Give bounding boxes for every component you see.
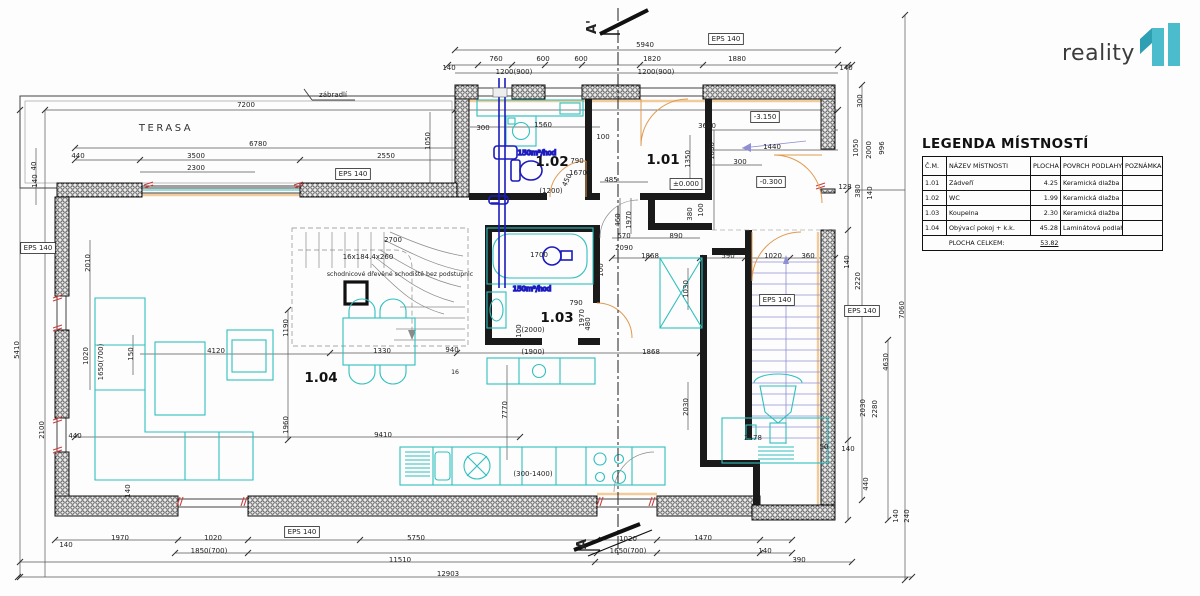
floor-plan-drawing: A'A5940760600600182018801401401200(900)1… <box>0 0 1200 596</box>
total-value: 53.82 <box>1031 236 1061 251</box>
dim-label: 300 <box>856 94 864 107</box>
cell-cm: 1.02 <box>923 191 947 206</box>
niche-door <box>614 452 654 492</box>
dim-label: 790 <box>570 157 583 165</box>
dim-label: 1030 <box>682 280 690 298</box>
dim-label: 2300 <box>187 164 205 172</box>
dim-label: 1868 <box>641 252 659 260</box>
eps-label: EPS 140 <box>288 528 317 536</box>
wardrobe <box>660 258 702 328</box>
dim-label: 1190 <box>282 319 290 337</box>
dim-label: 150 <box>127 347 135 360</box>
logo-flag <box>1140 28 1152 54</box>
dim-label: 2010 <box>84 254 92 272</box>
dim-label: 140 <box>841 445 854 453</box>
eps-label: EPS 140 <box>24 244 53 252</box>
dim-label: 790 <box>569 299 582 307</box>
kitchen-sink <box>435 452 450 480</box>
cell-povrch: Keramická dlažba <box>1061 206 1123 221</box>
eps-label: EPS 140 <box>848 307 877 315</box>
dim-label: 2100 <box>38 421 46 439</box>
dim-label: 1050 <box>424 132 432 150</box>
dim-label: 7770 <box>501 401 509 419</box>
cell-povrch: Keramická dlažba <box>1061 176 1123 191</box>
drainboard <box>405 452 430 476</box>
cooktop <box>594 453 626 484</box>
dim-label: 600 <box>536 55 549 63</box>
level-label: -0.300 <box>760 178 783 186</box>
dim-label: 485 <box>604 176 617 184</box>
legend-total-row: PLOCHA CELKEM: 53.82 <box>923 236 1163 251</box>
dim-label: 1868 <box>642 348 660 356</box>
dim-label: 480 <box>584 317 592 330</box>
dim-label: 2090 <box>615 244 633 252</box>
vent-label-wc: 150m³/hod <box>518 149 557 157</box>
cell-cm: 1.04 <box>923 221 947 236</box>
dim-label: 1560 <box>534 121 552 129</box>
window-sill-marks <box>53 182 825 506</box>
dim-label: 16x184.4x260 <box>343 253 394 261</box>
legend-row: 1.02 WC 1.99 Keramická dlažba <box>923 191 1163 206</box>
dim-label: 460 <box>614 213 622 226</box>
dim-label: 1960 <box>282 416 290 434</box>
dim-label: 140 <box>892 509 900 522</box>
dim-label: 11510 <box>389 556 411 564</box>
cell-plocha: 2.30 <box>1031 206 1061 221</box>
dim-label: 1470 <box>694 534 712 542</box>
dim-label: 140 <box>758 547 771 555</box>
section-marker-label-bottom: A <box>575 539 590 549</box>
dim-label: 40 <box>30 162 38 171</box>
dim-label: 100 <box>596 133 609 141</box>
legend-header-row: Č.M. NÁZEV MÍSTNOSTI PLOCHA [m2] POVRCH … <box>923 157 1163 176</box>
dim-label: 100 <box>597 263 605 276</box>
dim-label: 1970 <box>625 211 633 229</box>
legend-title: LEGENDA MÍSTNOSTÍ <box>922 136 1162 152</box>
cell-nazev: Koupelna <box>947 206 1031 221</box>
dim-label: 380 <box>854 184 862 197</box>
col-povrch: POVRCH PODLAHY <box>1061 157 1123 176</box>
dim-label: 7200 <box>237 101 255 109</box>
terrace-label: TERASA <box>138 123 193 134</box>
eps-label: EPS 140 <box>712 35 741 43</box>
dim-label: 140 <box>442 64 455 72</box>
stove-armchair <box>722 374 828 463</box>
stair-note: schodnicové dřevěné schodiště bez podstu… <box>327 270 474 278</box>
cell-plocha: 1.99 <box>1031 191 1061 206</box>
floor-plan-page: { "logo": { "text": "reality", "brand_co… <box>0 0 1200 596</box>
dim-label: 4630 <box>882 353 890 371</box>
dim-label: 3620 <box>698 122 716 130</box>
dim-label: 1820 <box>643 55 661 63</box>
dim-label: 100 <box>697 203 705 216</box>
dim-label: 300 <box>733 158 746 166</box>
legend-table: Č.M. NÁZEV MÍSTNOSTI PLOCHA [m2] POVRCH … <box>922 156 1163 251</box>
dim-label: 360 <box>801 252 814 260</box>
dim-label: 1020 <box>82 347 90 365</box>
logo-bar-1 <box>1152 28 1164 66</box>
dim-label: 5750 <box>407 534 425 542</box>
entry-direction-arrow <box>742 143 751 152</box>
dim-label: 600 <box>574 55 587 63</box>
dim-label: 1350 <box>684 150 692 168</box>
tv-armchair <box>227 330 273 380</box>
cell-nazev: WC <box>947 191 1031 206</box>
dim-label: 1650(700) <box>97 343 105 380</box>
washing-machine <box>506 116 536 146</box>
eps-label: EPS 140 <box>763 296 792 304</box>
dim-label: 2000 <box>865 141 873 159</box>
section-marker-label-top: A' <box>585 20 600 34</box>
dim-label: 9410 <box>374 431 392 439</box>
vent-label-bath: 150m³/hod <box>513 285 552 293</box>
dim-label: 50 <box>820 443 829 451</box>
dim-label: 1020 <box>619 535 637 543</box>
dim-label: 440 <box>71 152 84 160</box>
dim-label: 140 <box>31 174 39 187</box>
level-label: -3.150 <box>754 113 777 121</box>
dim-label: 1880 <box>728 55 746 63</box>
dim-label: 1050 <box>852 139 860 157</box>
dim-label: 140 <box>124 484 132 497</box>
dim-label: 140 <box>839 64 852 72</box>
dining-table <box>343 299 415 384</box>
col-cm: Č.M. <box>923 157 947 176</box>
dim-label: 380 <box>686 207 694 220</box>
cell-povrch: Laminátová podlaha <box>1061 221 1123 236</box>
eps-label: EPS 140 <box>339 170 368 178</box>
dim-label: (1900) <box>521 348 545 356</box>
cell-plocha: 45.28 <box>1031 221 1061 236</box>
legend-row: 1.01 Zádveří 4.25 Keramická dlažba <box>923 176 1163 191</box>
dim-label: 3500 <box>187 152 205 160</box>
dim-label: 1050 <box>708 142 716 160</box>
dim-label: 1440 <box>763 143 781 151</box>
room-label-1-03: 1.03 <box>540 310 573 326</box>
pipe-box <box>493 88 507 97</box>
interior-stairs <box>292 228 468 346</box>
cell-nazev: Obývací pokoj + k.k. <box>947 221 1031 236</box>
cell-poznamka <box>1123 221 1163 236</box>
legend: LEGENDA MÍSTNOSTÍ Č.M. NÁZEV MÍSTNOSTI P… <box>922 136 1162 251</box>
dim-label: 4120 <box>207 347 225 355</box>
dim-label: 1020 <box>764 252 782 260</box>
dim-label: 140 <box>843 255 851 268</box>
dim-label: 2220 <box>854 272 862 290</box>
dim-label: 890 <box>669 232 682 240</box>
bath-door <box>597 303 632 338</box>
dim-label: (1200) <box>539 187 563 195</box>
dim-label: 440 <box>68 432 81 440</box>
dim-label: 140 <box>866 186 874 199</box>
dim-label: (2000) <box>521 326 545 334</box>
cell-povrch: Keramická dlažba <box>1061 191 1123 206</box>
cell-nazev: Zádveří <box>947 176 1031 191</box>
railing-label: zábradlí <box>319 91 348 99</box>
windows <box>57 88 703 507</box>
dim-label: 1650(700) <box>610 547 647 555</box>
dim-label: 1850(700) <box>191 547 228 555</box>
room-label-1-04: 1.04 <box>304 370 337 386</box>
entry-door <box>641 99 688 146</box>
room-label-1-01: 1.01 <box>646 152 679 168</box>
col-poznamka: POZNÁMKA <box>1123 157 1163 176</box>
dim-label: 16 <box>451 369 459 376</box>
dim-label: 100 <box>515 324 523 337</box>
level-label: ±0.000 <box>673 180 699 188</box>
cell-cm: 1.01 <box>923 176 947 191</box>
dim-label: 1200(900) <box>638 68 675 76</box>
dim-label: 570 <box>617 232 630 240</box>
dim-label: 7060 <box>898 301 906 319</box>
cell-poznamka <box>1123 206 1163 221</box>
dim-label: 1020 <box>204 534 222 542</box>
dim-label: 300 <box>476 124 489 132</box>
sofa <box>95 298 253 480</box>
dim-label: 5410 <box>13 341 21 359</box>
logo-text: reality <box>1062 43 1135 65</box>
dim-label: 996 <box>878 141 886 155</box>
dim-label: 6780 <box>249 140 267 148</box>
cell-poznamka <box>1123 176 1163 191</box>
logo-bar-2 <box>1168 23 1180 66</box>
dim-label: 2550 <box>377 152 395 160</box>
dim-label: 440 <box>862 477 870 490</box>
dim-label: 1700 <box>530 251 548 259</box>
dim-label: 940 <box>445 346 458 354</box>
total-label: PLOCHA CELKEM: <box>923 236 1031 251</box>
legend-row: 1.04 Obývací pokoj + k.k. 45.28 Lamináto… <box>923 221 1163 236</box>
logo-11-mark <box>1137 22 1185 68</box>
col-nazev: NÁZEV MÍSTNOSTI <box>947 157 1031 176</box>
cell-plocha: 4.25 <box>1031 176 1061 191</box>
dim-label: 140 <box>59 541 72 549</box>
dim-label: 2030 <box>682 398 690 416</box>
coffee-table <box>155 342 205 415</box>
dim-label: 2280 <box>871 400 879 418</box>
dim-label: (300-1400) <box>513 470 552 478</box>
dim-label: 390 <box>792 556 805 564</box>
dim-label: 1200(900) <box>496 68 533 76</box>
cell-cm: 1.03 <box>923 206 947 221</box>
wc-counter <box>477 100 583 116</box>
dim-label: 2030 <box>859 399 867 417</box>
kitchen-counter <box>400 447 665 485</box>
dim-label: 5940 <box>636 41 654 49</box>
dim-label: 2478 <box>744 434 762 442</box>
dim-label: 240 <box>903 509 911 522</box>
dim-label: 12903 <box>437 570 459 578</box>
legend-row: 1.03 Koupelna 2.30 Keramická dlažba <box>923 206 1163 221</box>
dim-label: 1970 <box>111 534 129 542</box>
dim-label: 128 <box>838 183 851 191</box>
dim-label: 2700 <box>384 236 402 244</box>
dim-label: 590 <box>721 252 734 260</box>
reality11-logo: reality <box>1062 22 1185 68</box>
bathroom-cabinet <box>487 358 595 384</box>
col-plocha: PLOCHA [m2] <box>1031 157 1061 176</box>
cell-poznamka <box>1123 191 1163 206</box>
dim-label: 760 <box>489 55 502 63</box>
dim-label: 1330 <box>373 347 391 355</box>
